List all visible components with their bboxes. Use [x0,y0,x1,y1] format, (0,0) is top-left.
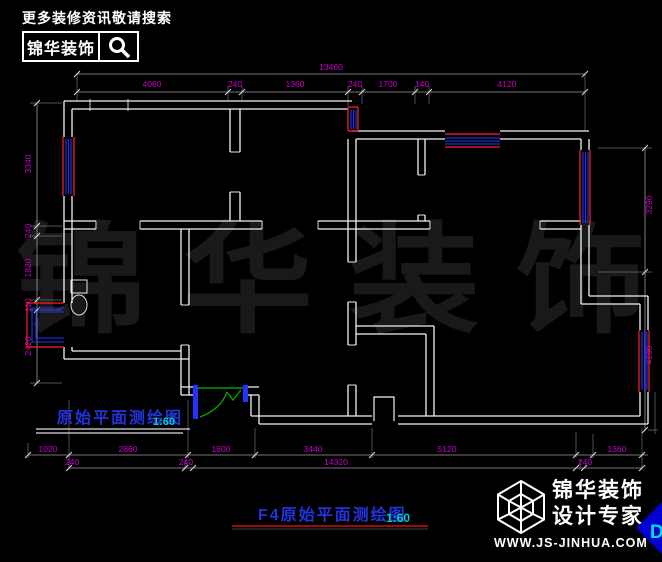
caption-underline [36,429,190,433]
dim-top-seg: 1700 [379,79,398,89]
dim-bottom-seg: 5120 [438,444,457,454]
cad-canvas: 更多装修资讯敬请搜索 锦华装饰 锦 华 装 饰 13460 4060 240 [0,0,662,562]
dim-left-seg: 3340 [23,154,33,173]
sheet-caption-scale: 1:60 [386,511,410,525]
dim-bottom-seg: 1360 [608,444,627,454]
door-swing [198,388,243,417]
company-logo-block: 锦华装饰 设计专家 WWW.JS-JINHUA.COM D [492,474,662,562]
sheet-caption-label: F4原始平面测绘图 [258,505,407,524]
watermark-text: 锦 华 装 饰 [16,214,646,348]
door-leaf [374,397,394,421]
plan-caption-scale: 1:60 [153,416,175,428]
sheet-caption: F4原始平面测绘图 1:60 [232,505,428,529]
dim-top-seg: 240 [228,79,242,89]
door-jamb [193,385,198,419]
dim-top-overall: 13460 [319,62,343,72]
footer-brand-line1: 锦华装饰 [552,478,644,504]
dim-top-seg: 1360 [286,79,305,89]
dim-left-seg: 240 [23,224,33,238]
dim-top-seg: 240 [348,79,362,89]
dim-bottom-seg: 3440 [304,444,323,454]
door-jamb [243,385,248,402]
plan-caption: 原始平面测绘图 1:60 [36,408,190,433]
footer-brand-line2: 设计专家 [552,504,644,530]
footer-url: WWW.JS-JINHUA.COM [494,536,648,550]
dim-top-seg: 4060 [143,79,162,89]
dim-bottom-seg: 240 [578,457,592,467]
cube-logo-icon [494,478,548,536]
dim-bottom-seg: 1020 [39,444,58,454]
dim-top-seg: 140 [415,79,429,89]
dim-bottom-seg: 240 [65,457,79,467]
footer-brand: 锦华装饰 设计专家 [552,478,644,530]
dim-bottom-seg: 1800 [212,444,231,454]
dim-right-seg: 3290 [644,195,654,214]
dim-bottom-seg: 2860 [119,444,138,454]
entry-door [193,385,248,419]
dim-bottom-seg: 240 [179,457,193,467]
dim-left-seg: 1820 [23,258,33,277]
cursor-label: D [650,522,662,544]
dim-bottom-overall: 14320 [324,457,348,467]
dim-top-seg: 4120 [498,79,517,89]
